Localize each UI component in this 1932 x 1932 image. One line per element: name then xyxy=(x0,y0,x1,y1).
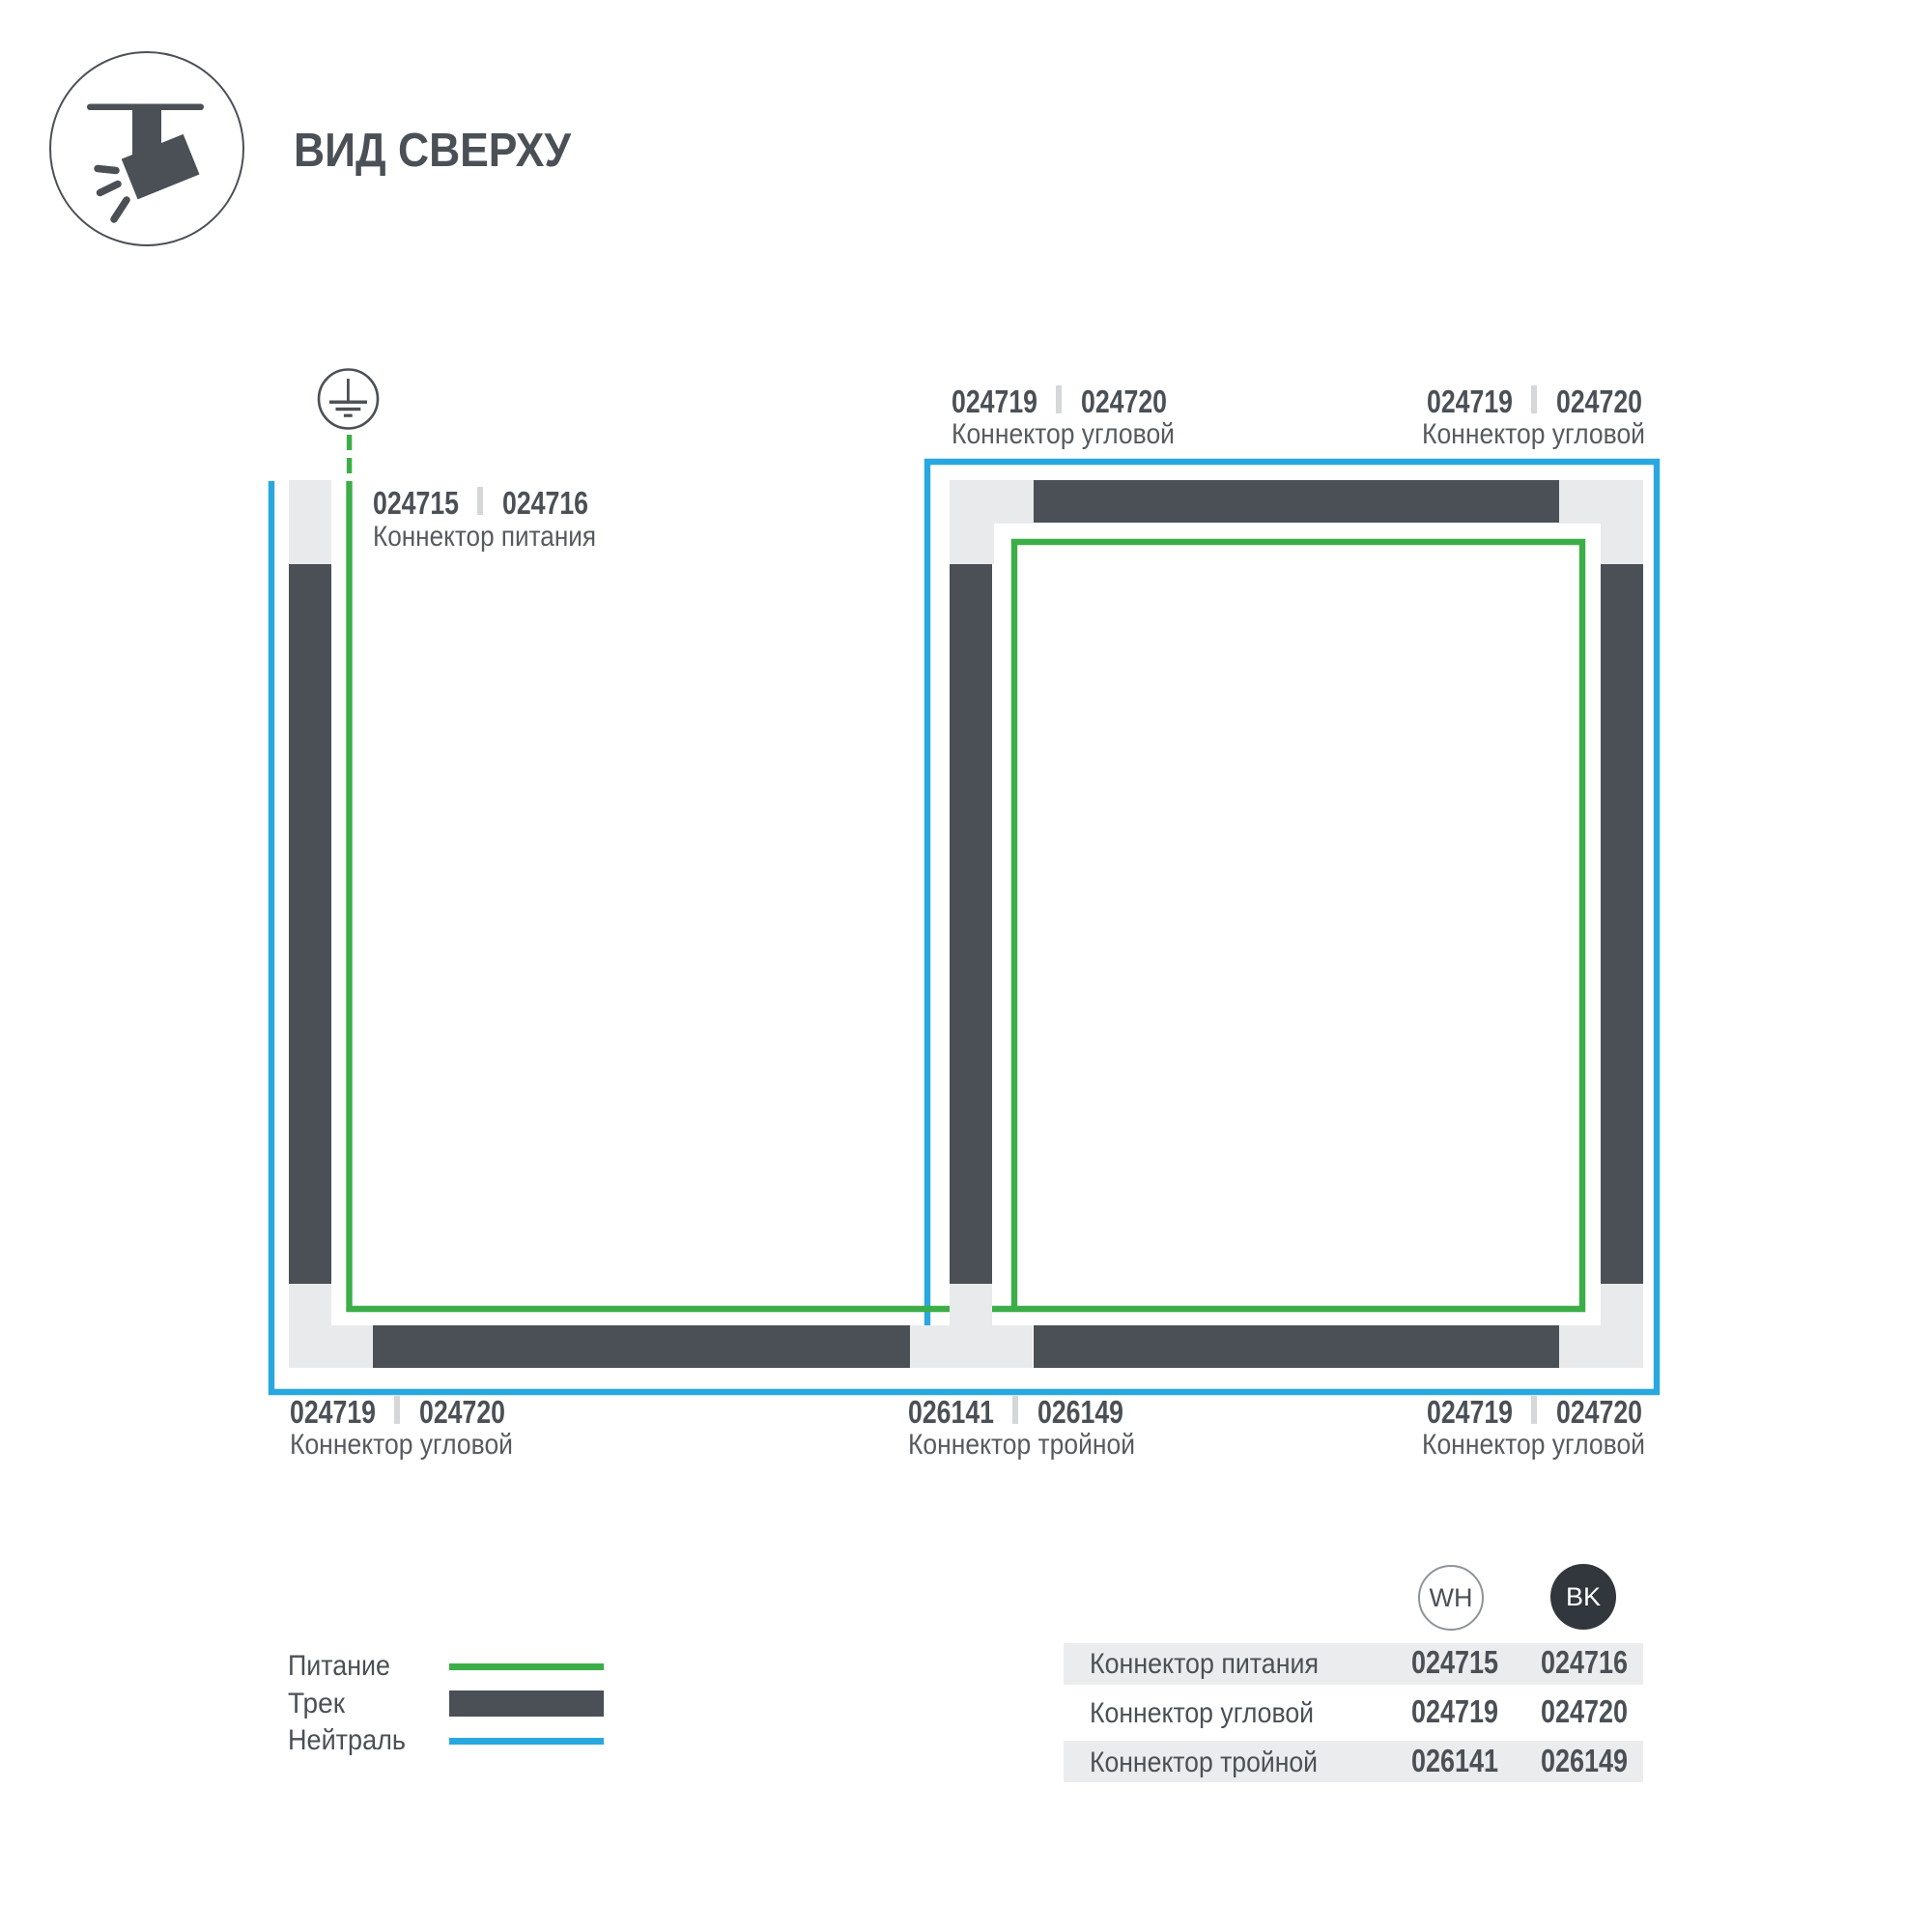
svg-text:024720: 024720 xyxy=(419,1394,505,1430)
svg-text:Трек: Трек xyxy=(288,1688,346,1719)
svg-text:024716: 024716 xyxy=(502,485,588,521)
svg-text:Коннектор угловой: Коннектор угловой xyxy=(1422,418,1645,450)
svg-text:026141: 026141 xyxy=(908,1394,994,1430)
svg-text:024720: 024720 xyxy=(1081,384,1167,419)
svg-text:024719: 024719 xyxy=(290,1394,376,1430)
svg-text:026149: 026149 xyxy=(1541,1743,1628,1778)
svg-text:Нейтраль: Нейтраль xyxy=(288,1724,406,1756)
svg-text:BK: BK xyxy=(1566,1582,1601,1611)
svg-text:024715: 024715 xyxy=(1411,1644,1498,1680)
svg-text:024719: 024719 xyxy=(1411,1693,1498,1729)
svg-text:WH: WH xyxy=(1430,1583,1473,1612)
svg-text:024715: 024715 xyxy=(373,485,459,521)
svg-text:024720: 024720 xyxy=(1541,1693,1628,1729)
svg-text:024719: 024719 xyxy=(952,384,1037,419)
svg-text:024720: 024720 xyxy=(1556,384,1642,419)
svg-text:Коннектор тройной: Коннектор тройной xyxy=(1090,1747,1318,1778)
svg-text:ВИД СВЕРХУ: ВИД СВЕРХУ xyxy=(294,124,572,177)
svg-text:Коннектор питания: Коннектор питания xyxy=(373,521,596,553)
svg-text:Коннектор угловой: Коннектор угловой xyxy=(1422,1429,1645,1461)
svg-text:024719: 024719 xyxy=(1427,384,1513,419)
svg-text:Коннектор угловой: Коннектор угловой xyxy=(952,418,1175,450)
svg-text:Коннектор угловой: Коннектор угловой xyxy=(1090,1697,1314,1729)
svg-text:026141: 026141 xyxy=(1411,1743,1498,1778)
svg-text:Коннектор тройной: Коннектор тройной xyxy=(908,1429,1135,1461)
svg-text:Коннектор питания: Коннектор питания xyxy=(1090,1648,1319,1680)
svg-text:024716: 024716 xyxy=(1541,1644,1628,1680)
svg-text:Коннектор угловой: Коннектор угловой xyxy=(290,1429,513,1461)
svg-text:026149: 026149 xyxy=(1037,1394,1123,1430)
svg-text:024720: 024720 xyxy=(1556,1394,1642,1430)
svg-text:024719: 024719 xyxy=(1427,1394,1513,1430)
svg-text:Питание: Питание xyxy=(288,1650,390,1682)
